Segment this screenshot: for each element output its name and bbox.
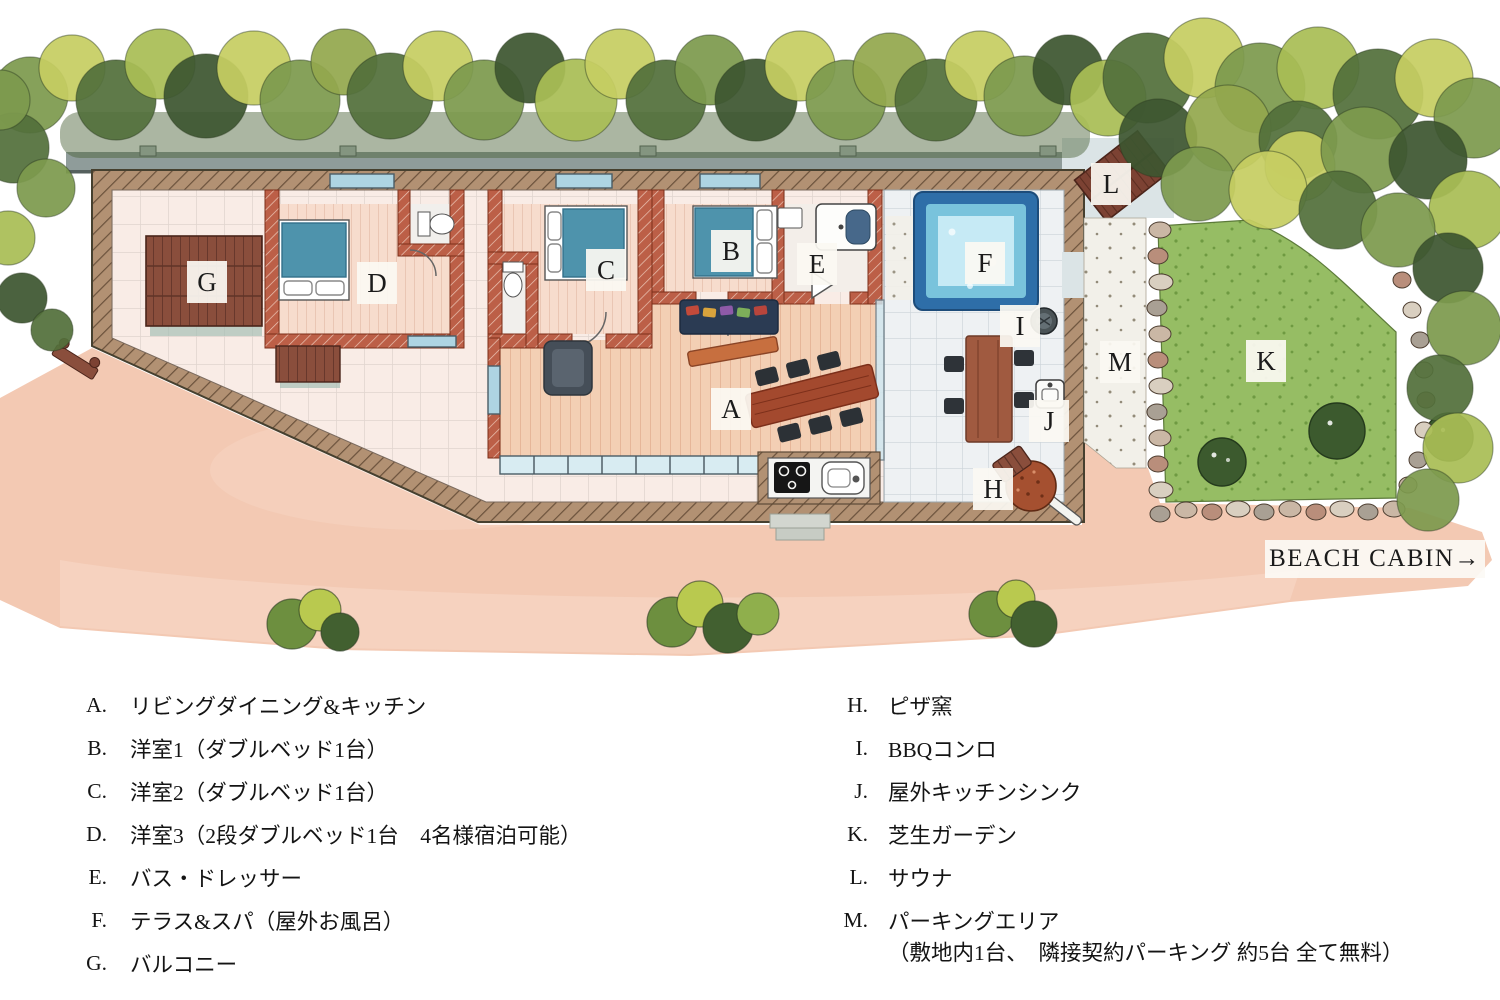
legend-letter: H. xyxy=(820,693,868,718)
room-label-h: H xyxy=(973,468,1013,510)
legend-text: 洋室2（ダブルベッド1台） xyxy=(130,776,388,807)
legend-letter: I. xyxy=(820,736,868,761)
legend-text: ピザ窯 xyxy=(888,690,953,721)
legend-letter: J. xyxy=(820,779,868,804)
legend-letter: D. xyxy=(61,822,107,847)
room-label-d: D xyxy=(357,262,397,304)
legend-item-i: I.BBQコンロ xyxy=(820,727,1480,770)
legend-text: 屋外キッチンシンク xyxy=(888,776,1082,807)
legend-text: 洋室1（ダブルベッド1台） xyxy=(130,733,388,764)
room-label-e: E xyxy=(797,243,837,285)
site-plan-page: A B C D E F G H I J K L M BEACH CABIN→ A… xyxy=(0,0,1500,1000)
legend-item-m-note: （敷地内1台、 隣接契約パーキング 約5台 全て無料） xyxy=(888,939,1480,968)
legend-text: 洋室3（2段ダブルベッド1台 4名様宿泊可能） xyxy=(130,819,582,850)
legend-text: リビングダイニング&キッチン xyxy=(130,690,426,721)
legend-item-j: J.屋外キッチンシンク xyxy=(820,770,1480,813)
room-label-b: B xyxy=(711,230,751,272)
legend-item-l: L.サウナ xyxy=(820,856,1480,899)
legend-text: サウナ xyxy=(888,862,953,893)
room-label-l: L xyxy=(1091,163,1131,205)
legend-text: BBQコンロ xyxy=(888,733,997,764)
legend-letter: E. xyxy=(61,865,107,890)
legend-item-k: K.芝生ガーデン xyxy=(820,813,1480,856)
room-label-f: F xyxy=(965,242,1005,284)
legend-text: パーキングエリア xyxy=(888,905,1059,936)
legend-item-b: B.洋室1（ダブルベッド1台） xyxy=(61,727,761,770)
room-label-j: J xyxy=(1029,400,1069,442)
legend-letter: B. xyxy=(61,736,107,761)
room-label-m: M xyxy=(1100,341,1140,383)
legend-column-right: H.ピザ窯 I.BBQコンロ J.屋外キッチンシンク K.芝生ガーデン L.サウ… xyxy=(820,684,1480,968)
legend-text: テラス&スパ（屋外お風呂） xyxy=(130,905,404,936)
room-label-i: I xyxy=(1000,305,1040,347)
beach-cabin-label: BEACH CABIN→ xyxy=(1265,540,1485,578)
legend-letter: C. xyxy=(61,779,107,804)
room-label-a: A xyxy=(711,388,751,430)
legend-letter: K. xyxy=(820,822,868,847)
legend-item-d: D.洋室3（2段ダブルベッド1台 4名様宿泊可能） xyxy=(61,813,761,856)
legend-item-c: C.洋室2（ダブルベッド1台） xyxy=(61,770,761,813)
legend-text: バス・ドレッサー xyxy=(130,862,302,893)
legend-item-e: E.バス・ドレッサー xyxy=(61,856,761,899)
room-label-k: K xyxy=(1246,340,1286,382)
legend-item-a: A.リビングダイニング&キッチン xyxy=(61,684,761,727)
legend-item-g: G.バルコニー xyxy=(61,942,761,985)
legend-letter: F. xyxy=(61,908,107,933)
legend-column-left: A.リビングダイニング&キッチン B.洋室1（ダブルベッド1台） C.洋室2（ダ… xyxy=(61,684,761,985)
legend-item-m: M.パーキングエリア xyxy=(820,899,1480,942)
legend-text: バルコニー xyxy=(130,948,237,979)
legend-letter: A. xyxy=(61,693,107,718)
legend-text: 芝生ガーデン xyxy=(888,819,1017,850)
room-label-g: G xyxy=(187,261,227,303)
legend-letter: L. xyxy=(820,865,868,890)
legend-item-f: F.テラス&スパ（屋外お風呂） xyxy=(61,899,761,942)
legend-letter: G. xyxy=(61,951,107,976)
room-label-c: C xyxy=(586,249,626,291)
legend-letter: M. xyxy=(820,908,868,933)
legend-item-h: H.ピザ窯 xyxy=(820,684,1480,727)
